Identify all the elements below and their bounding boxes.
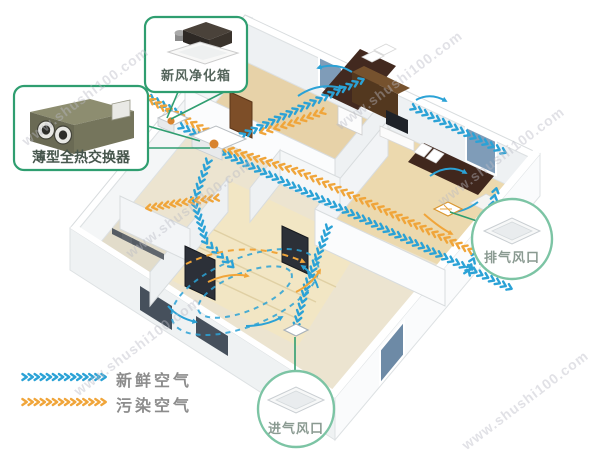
callout-exchanger xyxy=(14,86,148,170)
callout-purifier xyxy=(145,17,247,92)
floorplan-illustration xyxy=(0,0,600,450)
callout-exhaust-vent xyxy=(472,199,552,279)
legend xyxy=(25,377,104,402)
ventilation-diagram: www.shushi100.com www.shushi100.com www.… xyxy=(0,0,600,450)
callout-intake-vent xyxy=(258,371,334,447)
